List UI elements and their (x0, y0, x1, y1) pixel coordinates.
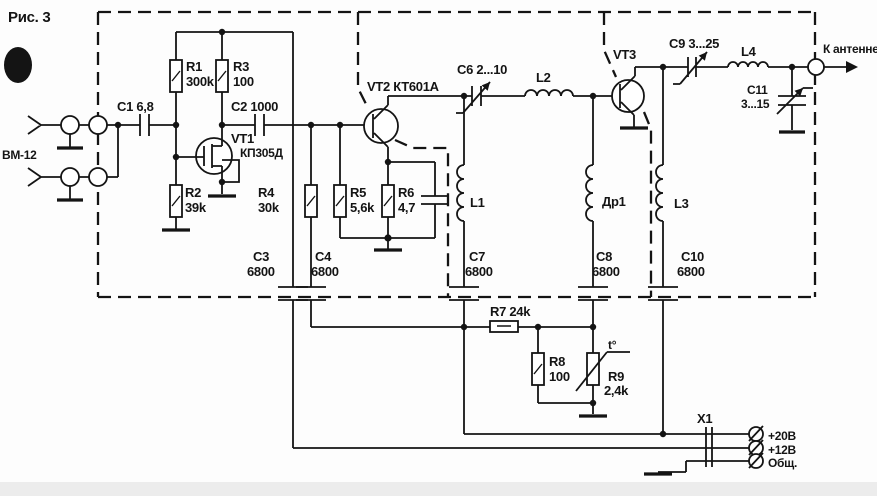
label-r5-name: R5 (350, 185, 366, 200)
label-r9-value: 2,4k (604, 383, 629, 398)
label-c4-name: C4 (315, 249, 332, 264)
label-r2-name: R2 (185, 185, 201, 200)
label-r5-value: 5,6k (350, 200, 375, 215)
label-c9: C9 3...25 (669, 36, 719, 51)
label-c7-name: C7 (469, 249, 485, 264)
label-r6-value: 4,7 (398, 200, 415, 215)
figure-caption: Рис. 3 (8, 9, 50, 26)
label-pin-common: Общ. (768, 456, 797, 470)
antenna-label: К антенне (823, 42, 877, 56)
capacitor-c11 (777, 67, 813, 130)
label-c11-name: C11 (747, 83, 768, 97)
label-c8-name: C8 (596, 249, 612, 264)
label-pin-20v: +20В (768, 429, 796, 443)
input-jack-top-icon (61, 116, 79, 134)
label-x1: X1 (697, 411, 712, 426)
label-l4: L4 (741, 44, 757, 59)
label-r4-name: R4 (258, 185, 275, 200)
label-r6-name: R6 (398, 185, 414, 200)
inductor-l2 (525, 90, 620, 96)
label-r9-temp: t° (608, 338, 617, 352)
ink-blot (4, 47, 32, 83)
inductor-l3-with-c10 (648, 67, 678, 434)
feedthrough-bottom-icon (89, 168, 107, 186)
inductor-dr1-with-c8 (578, 96, 608, 327)
label-vt2: VT2 КТ601А (367, 79, 440, 94)
label-r9-name: R9 (608, 369, 624, 384)
label-c7-value: 6800 (465, 264, 493, 279)
circuit-schematic: Рис. 3 ВМ-12 C1 6,8 C2 1000 R1 300k R3 1… (0, 0, 877, 496)
label-c2: C2 1000 (231, 99, 278, 114)
label-c4-value: 6800 (311, 264, 339, 279)
label-l1: L1 (470, 195, 485, 210)
label-r8-name: R8 (549, 354, 565, 369)
source-label: ВМ-12 (2, 148, 37, 162)
label-c10-name: C10 (681, 249, 704, 264)
label-r8-value: 100 (549, 369, 570, 384)
scanned-schematic-page: Рис. 3 ВМ-12 C1 6,8 C2 1000 R1 300k R3 1… (0, 0, 877, 496)
label-vt3: VT3 (613, 47, 636, 62)
label-c10-value: 6800 (677, 264, 705, 279)
feedthrough-top-icon (89, 116, 107, 134)
label-vt1-name: VT1 (231, 131, 254, 146)
label-c3-name: C3 (253, 249, 269, 264)
label-l2: L2 (536, 70, 551, 85)
resistor-hatch-marks (172, 71, 542, 374)
label-vt1-type: КП305Д (240, 146, 283, 160)
label-c11-value: 3...15 (741, 97, 770, 111)
label-r7: R7 24k (490, 304, 531, 319)
label-r3-name: R3 (233, 59, 249, 74)
scan-edge-band (0, 482, 877, 496)
transistor-vt2 (364, 109, 398, 143)
capacitor-c9 (635, 52, 707, 84)
bias-network (464, 321, 630, 416)
input-jack-bottom-icon (61, 168, 79, 186)
antenna-connector-icon (808, 59, 824, 75)
label-r3-value: 100 (233, 74, 254, 89)
label-c8-value: 6800 (592, 264, 620, 279)
label-c3-value: 6800 (247, 264, 275, 279)
label-r2-value: 39k (185, 200, 207, 215)
label-pin-12v: +12В (768, 443, 796, 457)
label-c6: C6 2...10 (457, 62, 507, 77)
label-r4-value: 30k (258, 200, 280, 215)
label-r1-value: 300k (186, 74, 215, 89)
stage-vt2 (296, 82, 620, 434)
label-l3: L3 (674, 196, 689, 211)
transistor-vt3 (612, 80, 644, 112)
label-dr1: Др1 (602, 194, 626, 209)
label-c1: C1 6,8 (117, 99, 154, 114)
label-r1-name: R1 (186, 59, 202, 74)
transistor-vt1 (196, 138, 232, 174)
input-connectors (28, 116, 140, 200)
antenna-arrow-icon (846, 61, 858, 73)
